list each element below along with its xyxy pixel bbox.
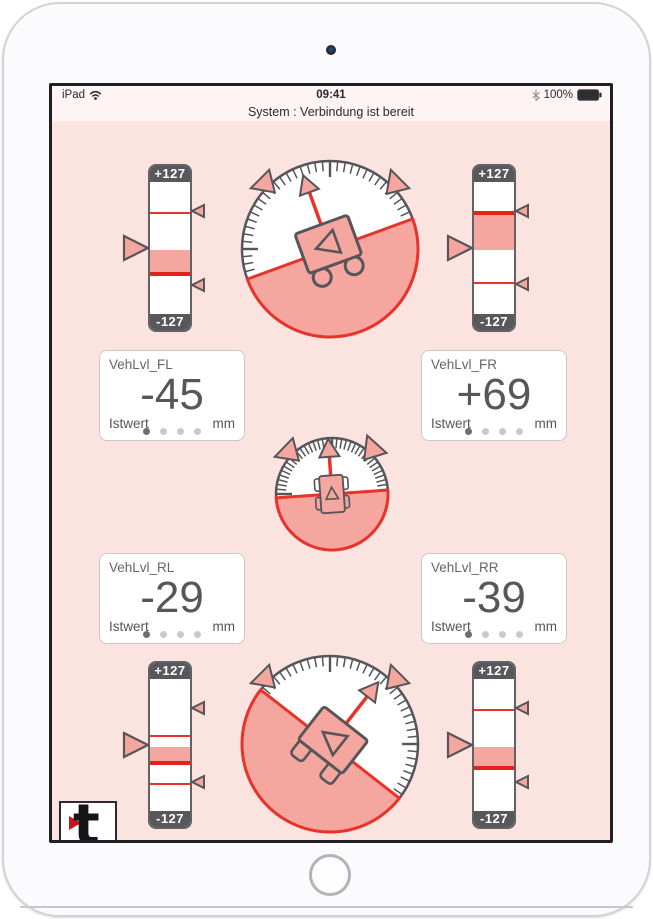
vertical-gauge-front-left: +127-127 bbox=[120, 164, 220, 332]
page-dot[interactable] bbox=[177, 428, 184, 435]
page-dots[interactable] bbox=[100, 427, 244, 435]
ipad-frame: iPad 09:41 100% bbox=[2, 2, 651, 917]
value-card-rear-left[interactable]: VehLvl_RL -29 Istwert mm bbox=[99, 553, 245, 644]
peak-marker-icon bbox=[189, 202, 207, 220]
home-button[interactable] bbox=[309, 854, 351, 896]
dashboard: +127-127 +127-127 +127-127 +127-127 VehL… bbox=[52, 121, 610, 840]
gauge-fill bbox=[474, 747, 514, 768]
gauge-bar: +127-127 bbox=[148, 164, 192, 332]
gauge-max-label: +127 bbox=[474, 663, 514, 679]
gauge-max-label: +127 bbox=[474, 166, 514, 182]
gauge-limit-line bbox=[474, 709, 514, 711]
gauge-limit-line bbox=[474, 282, 514, 284]
gauge-value-line bbox=[474, 211, 514, 215]
peak-marker-icon bbox=[513, 773, 531, 791]
gauge-limit-line bbox=[150, 735, 190, 737]
page-dot[interactable] bbox=[160, 631, 167, 638]
gauge-max-label: +127 bbox=[150, 663, 190, 679]
gauge-min-label: -127 bbox=[474, 314, 514, 330]
peak-marker-icon bbox=[189, 773, 207, 791]
gauge-value-line bbox=[150, 272, 190, 276]
battery-percent: 100% bbox=[544, 89, 573, 101]
zero-marker-icon bbox=[445, 730, 475, 760]
app-screen: iPad 09:41 100% bbox=[49, 83, 613, 843]
system-status-message: System : Verbindung ist bereit bbox=[52, 105, 610, 119]
app-logo[interactable]: t bbox=[59, 801, 117, 843]
card-value: -29 bbox=[100, 576, 244, 620]
page-dots[interactable] bbox=[422, 427, 566, 435]
page-dot[interactable] bbox=[465, 631, 472, 638]
gauge-fill bbox=[150, 250, 190, 274]
page-dot[interactable] bbox=[499, 428, 506, 435]
card-value: -45 bbox=[100, 373, 244, 417]
page-dot[interactable] bbox=[194, 428, 201, 435]
page-dot[interactable] bbox=[516, 631, 523, 638]
page-dot[interactable] bbox=[516, 428, 523, 435]
page-dot[interactable] bbox=[482, 631, 489, 638]
peak-marker-icon bbox=[189, 276, 207, 294]
page-dot[interactable] bbox=[482, 428, 489, 435]
page-dot[interactable] bbox=[499, 631, 506, 638]
gauge-min-label: -127 bbox=[150, 314, 190, 330]
gauge-max-label: +127 bbox=[150, 166, 190, 182]
page-dot[interactable] bbox=[177, 631, 184, 638]
vertical-gauge-rear-right: +127-127 bbox=[444, 661, 544, 829]
peak-marker-icon bbox=[513, 275, 531, 293]
page-dots[interactable] bbox=[422, 630, 566, 638]
zero-marker-icon bbox=[121, 730, 151, 760]
value-card-rear-right[interactable]: VehLvl_RR -39 Istwert mm bbox=[421, 553, 567, 644]
gauge-fill bbox=[474, 213, 514, 250]
zero-marker-icon bbox=[445, 233, 475, 263]
clock: 09:41 bbox=[52, 89, 610, 101]
page-dot[interactable] bbox=[465, 428, 472, 435]
peak-marker-icon bbox=[189, 699, 207, 717]
zero-marker-icon bbox=[121, 233, 151, 263]
gauge-limit-line bbox=[150, 783, 190, 785]
bluetooth-icon bbox=[532, 89, 540, 101]
gauge-bar: +127-127 bbox=[472, 164, 516, 332]
dial-rear-axle-tilt bbox=[224, 638, 436, 843]
vertical-gauge-rear-left: +127-127 bbox=[120, 661, 220, 829]
gauge-limit-line bbox=[150, 212, 190, 214]
battery-icon bbox=[577, 89, 602, 101]
gauge-bar: +127-127 bbox=[472, 661, 516, 829]
page-dot[interactable] bbox=[143, 428, 150, 435]
device-edge bbox=[20, 906, 633, 908]
card-value: +69 bbox=[422, 373, 566, 417]
vertical-gauge-front-right: +127-127 bbox=[444, 164, 544, 332]
dial-overhead-tilt bbox=[262, 424, 402, 564]
gauge-bar: +127-127 bbox=[148, 661, 192, 829]
page-dot[interactable] bbox=[160, 428, 167, 435]
gauge-value-line bbox=[474, 766, 514, 770]
page-dot[interactable] bbox=[143, 631, 150, 638]
page: iPad 09:41 100% bbox=[0, 0, 653, 919]
page-dot[interactable] bbox=[194, 631, 201, 638]
logo-letter: t bbox=[73, 793, 100, 843]
dial-front-axle-tilt bbox=[224, 143, 436, 355]
gauge-value-line bbox=[150, 761, 190, 765]
front-camera-icon bbox=[326, 45, 336, 55]
value-card-front-left[interactable]: VehLvl_FL -45 Istwert mm bbox=[99, 350, 245, 441]
page-dots[interactable] bbox=[100, 630, 244, 638]
peak-marker-icon bbox=[513, 202, 531, 220]
peak-marker-icon bbox=[513, 699, 531, 717]
card-value: -39 bbox=[422, 576, 566, 620]
gauge-min-label: -127 bbox=[474, 811, 514, 827]
status-bar: iPad 09:41 100% bbox=[52, 86, 610, 106]
gauge-min-label: -127 bbox=[150, 811, 190, 827]
value-card-front-right[interactable]: VehLvl_FR +69 Istwert mm bbox=[421, 350, 567, 441]
